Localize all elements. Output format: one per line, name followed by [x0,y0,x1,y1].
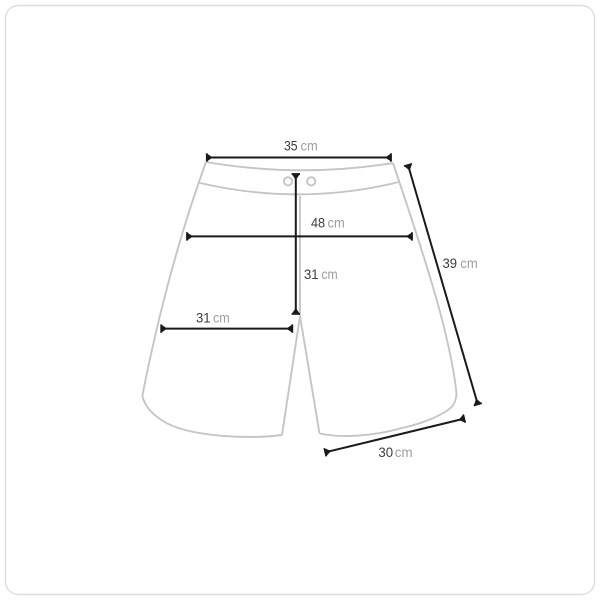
svg-text:cm: cm [460,255,477,271]
svg-text:39: 39 [443,255,458,271]
svg-text:cm: cm [213,310,230,326]
svg-text:cm: cm [395,444,413,460]
svg-text:35: 35 [284,138,298,154]
svg-text:cm: cm [301,138,318,154]
svg-text:48: 48 [311,215,325,231]
svg-text:cm: cm [321,266,337,282]
svg-text:cm: cm [328,215,345,231]
svg-text:31: 31 [304,266,319,282]
svg-text:31: 31 [196,310,211,326]
svg-text:30: 30 [378,444,393,460]
